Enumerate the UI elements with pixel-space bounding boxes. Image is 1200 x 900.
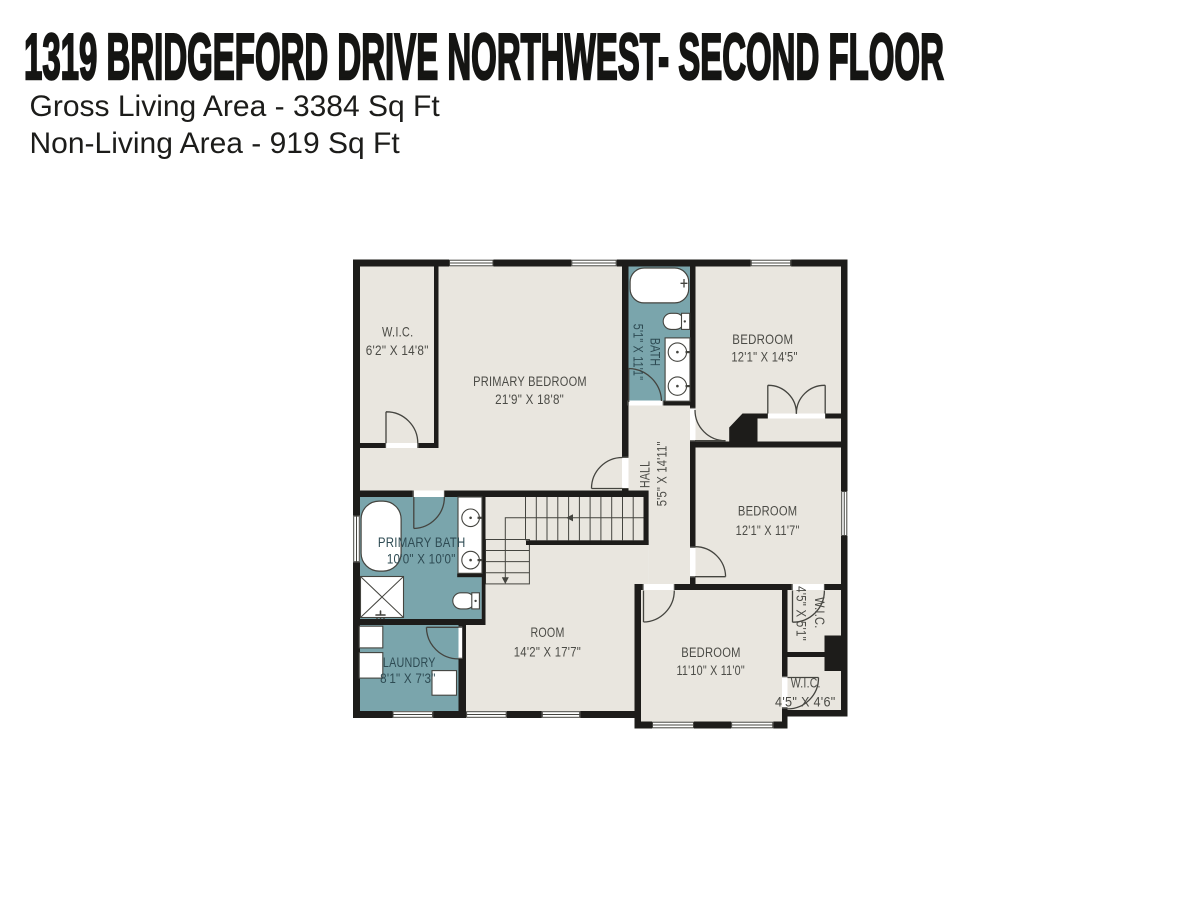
svg-text:12'1" X 14'5": 12'1" X 14'5" <box>731 349 797 364</box>
svg-text:4'5" X 5'1": 4'5" X 5'1" <box>793 586 809 641</box>
svg-text:14'2" X 17'7": 14'2" X 17'7" <box>514 643 581 659</box>
svg-text:BEDROOM: BEDROOM <box>738 503 797 518</box>
svg-text:5'5" X 14'11": 5'5" X 14'11" <box>654 441 670 506</box>
svg-text:8'1" X 7'3": 8'1" X 7'3" <box>380 670 436 686</box>
svg-text:10'0" X 10'0": 10'0" X 10'0" <box>387 551 456 567</box>
svg-text:W.I.C.: W.I.C. <box>791 675 821 691</box>
svg-text:11'10" X 11'0": 11'10" X 11'0" <box>676 663 745 679</box>
svg-text:LAUNDRY: LAUNDRY <box>383 655 436 671</box>
svg-text:4'5" X 4'6": 4'5" X 4'6" <box>775 694 836 710</box>
svg-text:W.I.C.: W.I.C. <box>812 597 828 628</box>
svg-text:21'9" X 18'8": 21'9" X 18'8" <box>495 391 564 407</box>
svg-text:BATH: BATH <box>647 338 663 366</box>
svg-text:ROOM: ROOM <box>530 625 564 641</box>
svg-text:BEDROOM: BEDROOM <box>681 645 740 660</box>
svg-text:5'1" X 11'1": 5'1" X 11'1" <box>630 324 646 380</box>
svg-text:PRIMARY BATH: PRIMARY BATH <box>378 534 466 550</box>
svg-text:6'2" X 14'8": 6'2" X 14'8" <box>366 342 429 358</box>
svg-text:PRIMARY BEDROOM: PRIMARY BEDROOM <box>473 374 587 390</box>
svg-text:W.I.C.: W.I.C. <box>382 324 413 340</box>
svg-text:BEDROOM: BEDROOM <box>732 331 793 347</box>
svg-text:12'1" X 11'7": 12'1" X 11'7" <box>736 523 800 539</box>
svg-text:HALL: HALL <box>637 461 653 488</box>
